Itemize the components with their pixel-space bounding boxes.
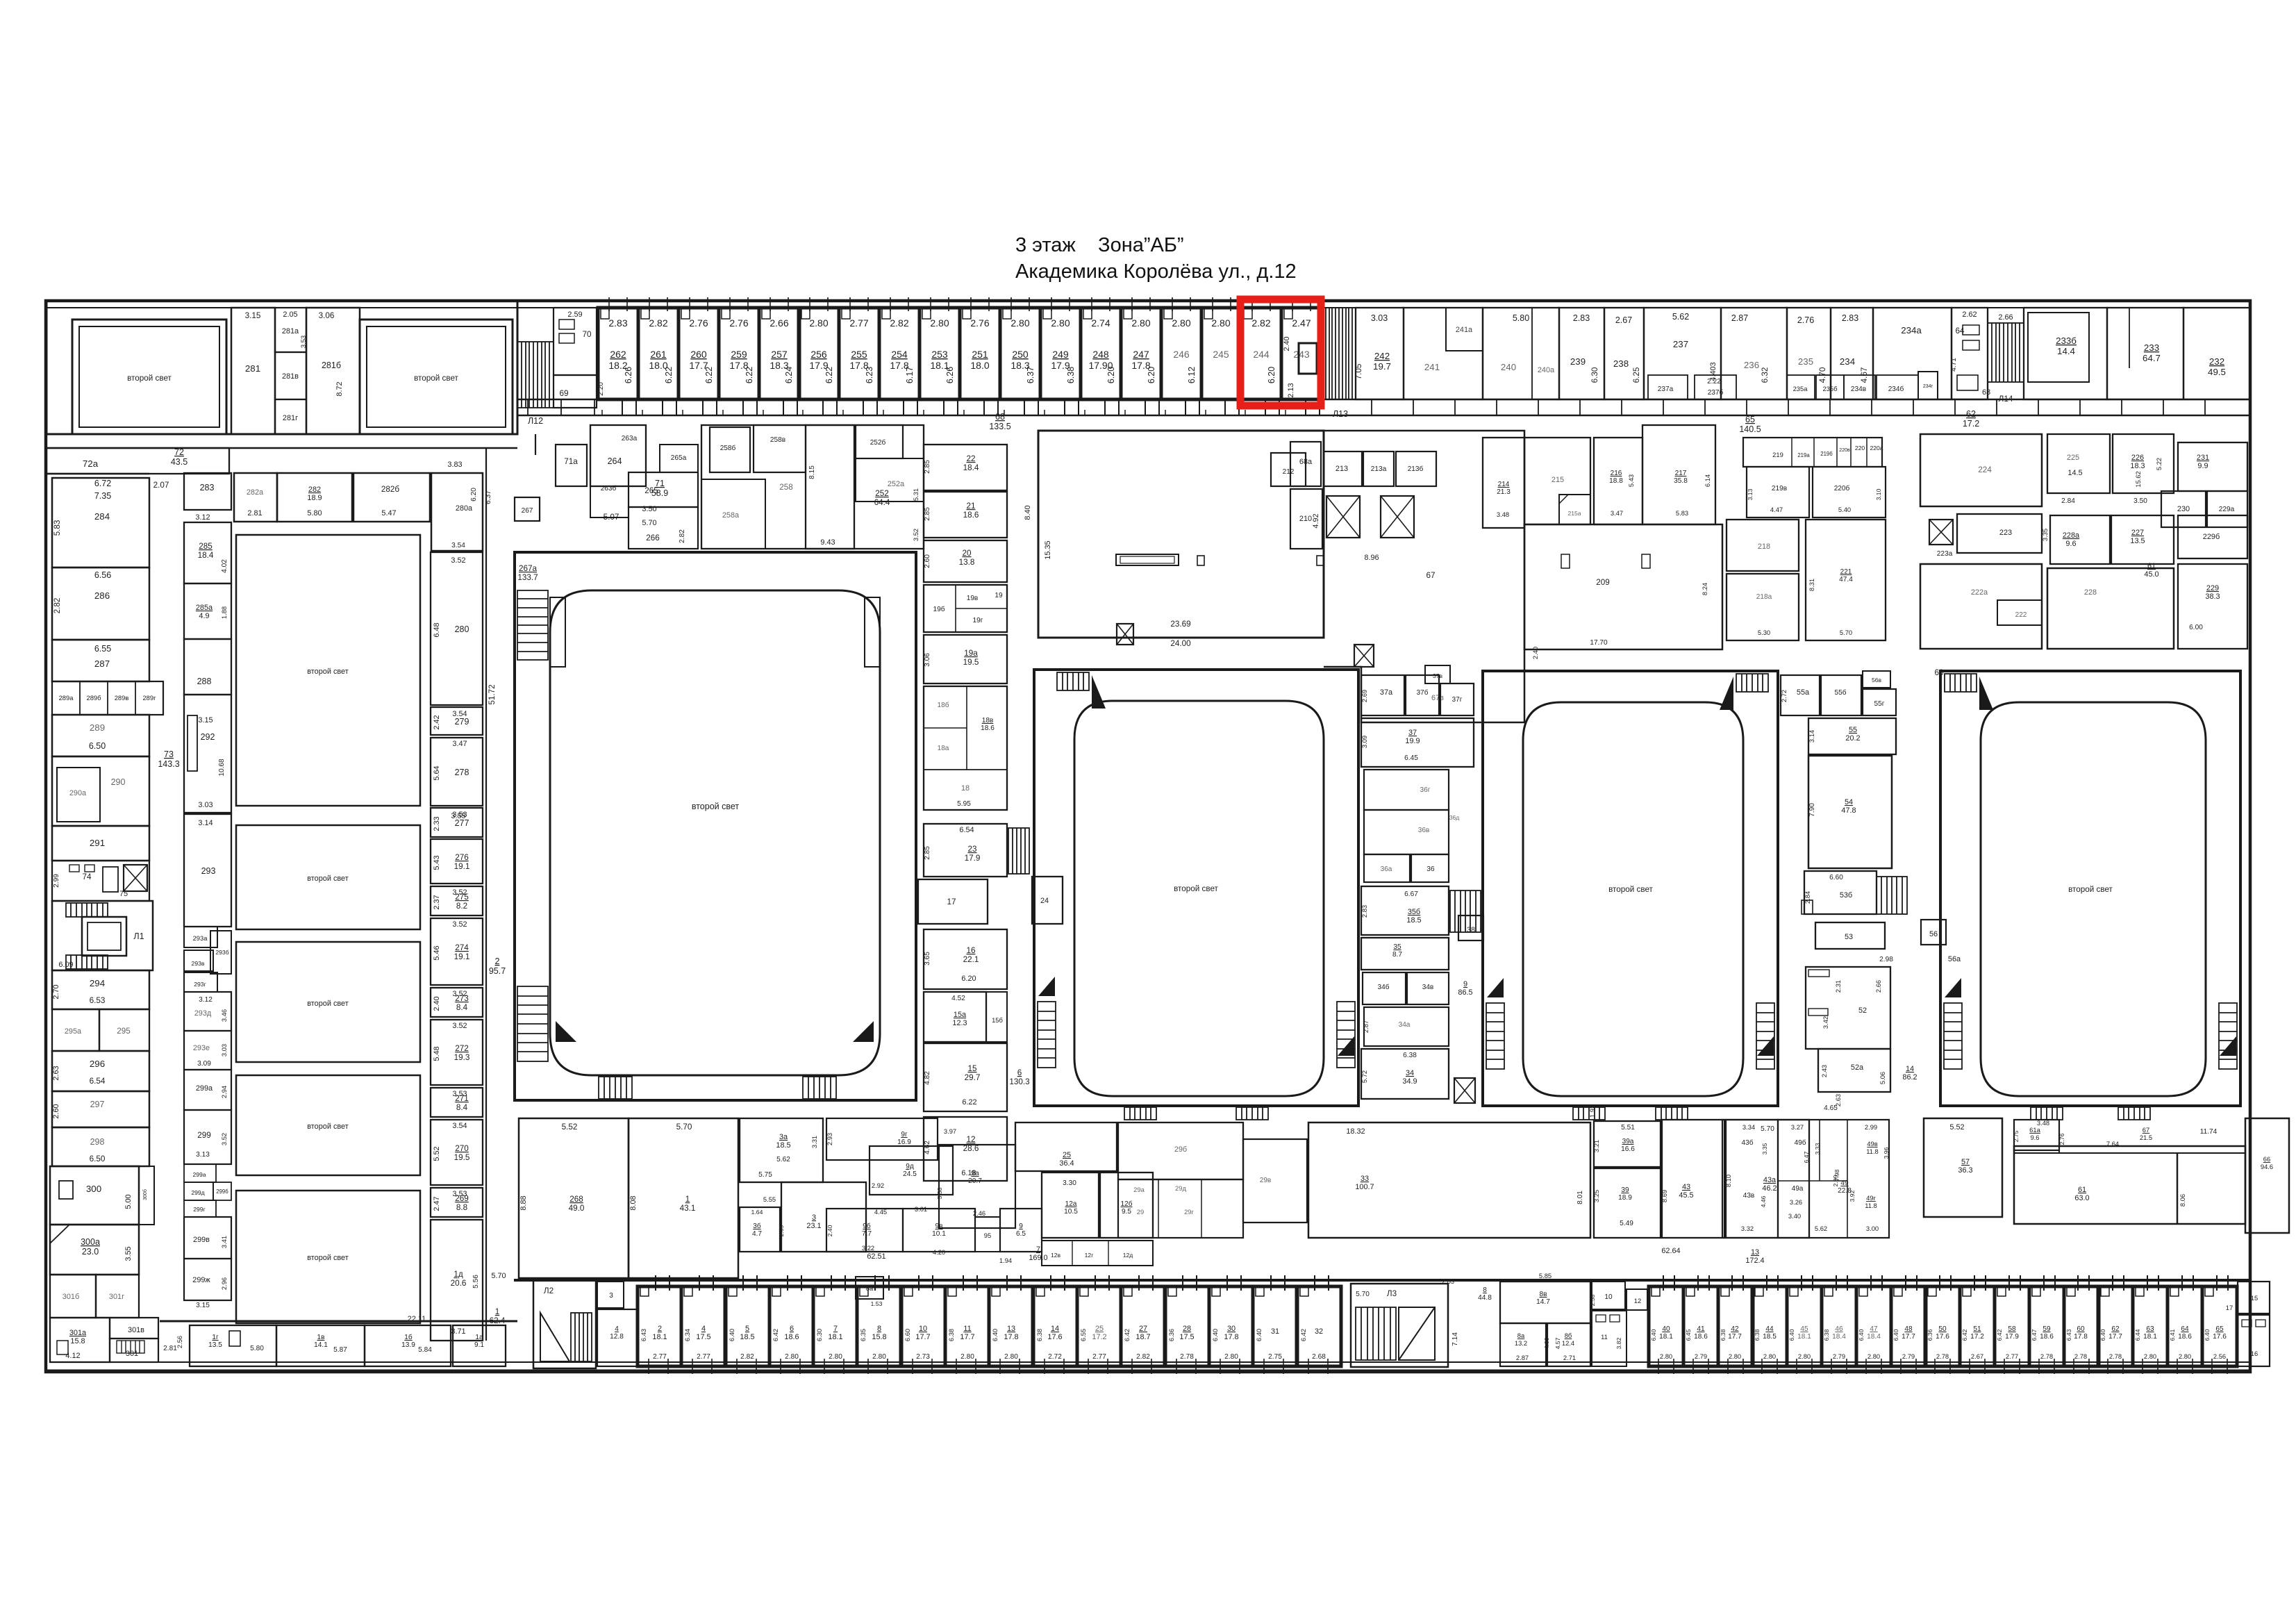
svg-text:65: 65 bbox=[2215, 1325, 2224, 1333]
svg-text:11.8: 11.8 bbox=[1866, 1147, 1879, 1155]
svg-text:5.75: 5.75 bbox=[758, 1171, 772, 1179]
svg-text:293в: 293в bbox=[192, 960, 205, 967]
svg-text:241а: 241а bbox=[1456, 326, 1473, 334]
svg-text:5.62: 5.62 bbox=[776, 1156, 790, 1163]
svg-text:2.80: 2.80 bbox=[872, 1353, 886, 1361]
svg-text:43б: 43б bbox=[1741, 1138, 1753, 1147]
svg-text:9д: 9д bbox=[906, 1163, 914, 1170]
svg-text:5.70: 5.70 bbox=[1761, 1125, 1774, 1133]
svg-text:293а: 293а bbox=[193, 934, 208, 942]
svg-text:2.93: 2.93 bbox=[826, 1133, 833, 1145]
svg-text:3.54: 3.54 bbox=[452, 1122, 467, 1130]
svg-text:249: 249 bbox=[1052, 349, 1069, 360]
svg-text:261: 261 bbox=[650, 349, 667, 360]
svg-text:7.05: 7.05 bbox=[1354, 363, 1363, 379]
svg-text:5.46: 5.46 bbox=[433, 945, 441, 960]
svg-text:220: 220 bbox=[1855, 445, 1865, 451]
svg-text:12д: 12д bbox=[1123, 1252, 1133, 1259]
svg-text:2.80: 2.80 bbox=[1763, 1352, 1776, 1360]
svg-text:8.88: 8.88 bbox=[519, 1195, 528, 1210]
svg-text:9: 9 bbox=[1019, 1223, 1023, 1230]
svg-text:3.46: 3.46 bbox=[220, 1009, 228, 1022]
svg-text:67: 67 bbox=[1426, 571, 1435, 580]
svg-text:8: 8 bbox=[1483, 1286, 1487, 1294]
svg-text:281а: 281а bbox=[282, 327, 299, 335]
svg-text:2: 2 bbox=[495, 956, 500, 966]
svg-text:2.77: 2.77 bbox=[849, 317, 868, 329]
svg-text:4.62: 4.62 bbox=[924, 1141, 931, 1154]
svg-text:2.77: 2.77 bbox=[697, 1353, 710, 1361]
svg-text:66: 66 bbox=[2263, 1155, 2270, 1163]
svg-text:6.22: 6.22 bbox=[744, 367, 754, 383]
svg-text:49в: 49в bbox=[1867, 1140, 1877, 1147]
svg-text:233: 233 bbox=[2144, 342, 2159, 353]
svg-text:267а: 267а bbox=[519, 564, 538, 573]
svg-text:14.7: 14.7 bbox=[1536, 1298, 1550, 1306]
svg-text:2.77: 2.77 bbox=[653, 1353, 667, 1361]
svg-text:6.38: 6.38 bbox=[1066, 367, 1076, 383]
svg-text:2.83: 2.83 bbox=[608, 317, 627, 329]
svg-text:271: 271 bbox=[455, 1094, 469, 1103]
svg-text:2.22: 2.22 bbox=[1707, 378, 1721, 386]
svg-text:35б: 35б bbox=[1408, 908, 1420, 916]
svg-text:5.30: 5.30 bbox=[1758, 629, 1770, 636]
svg-text:2.70: 2.70 bbox=[52, 984, 60, 999]
svg-text:59: 59 bbox=[2043, 1325, 2051, 1333]
svg-text:1б: 1б bbox=[404, 1333, 413, 1341]
svg-text:61: 61 bbox=[2078, 1186, 2086, 1194]
svg-text:2.79: 2.79 bbox=[1902, 1352, 1915, 1360]
svg-text:35: 35 bbox=[1393, 943, 1401, 951]
svg-text:6.00: 6.00 bbox=[2189, 624, 2203, 631]
svg-text:250: 250 bbox=[1012, 349, 1029, 360]
svg-text:8б: 8б bbox=[1565, 1332, 1572, 1339]
svg-text:27: 27 bbox=[1139, 1325, 1147, 1333]
svg-text:16.9: 16.9 bbox=[897, 1138, 911, 1146]
svg-text:2.80: 2.80 bbox=[960, 1353, 974, 1361]
svg-text:36в: 36в bbox=[1418, 827, 1430, 834]
svg-text:2.62: 2.62 bbox=[1962, 310, 1977, 319]
svg-text:2.77: 2.77 bbox=[2006, 1352, 2018, 1360]
svg-text:19.3: 19.3 bbox=[454, 1053, 470, 1062]
svg-text:2.40: 2.40 bbox=[433, 996, 441, 1011]
svg-text:273: 273 bbox=[455, 994, 469, 1003]
svg-text:52: 52 bbox=[1858, 1006, 1867, 1015]
svg-text:222: 222 bbox=[2015, 611, 2027, 619]
svg-text:51.72: 51.72 bbox=[488, 684, 497, 704]
svg-text:69: 69 bbox=[559, 389, 568, 398]
svg-text:246: 246 bbox=[1173, 349, 1190, 360]
svg-text:5.31: 5.31 bbox=[912, 488, 920, 501]
svg-text:235: 235 bbox=[1798, 356, 1813, 367]
svg-text:56а: 56а bbox=[1948, 955, 1961, 963]
svg-text:5.43: 5.43 bbox=[1627, 474, 1635, 487]
svg-text:12.3: 12.3 bbox=[952, 1019, 967, 1027]
svg-text:3.47: 3.47 bbox=[452, 740, 467, 748]
svg-text:2.66: 2.66 bbox=[770, 317, 788, 329]
svg-text:19.9: 19.9 bbox=[1405, 737, 1420, 745]
svg-text:8.40: 8.40 bbox=[1024, 505, 1032, 520]
svg-text:18.9: 18.9 bbox=[1618, 1194, 1632, 1202]
svg-text:218: 218 bbox=[1758, 542, 1770, 551]
svg-text:3.15: 3.15 bbox=[196, 1302, 210, 1309]
svg-text:18.1: 18.1 bbox=[652, 1333, 667, 1341]
svg-text:8.7: 8.7 bbox=[1392, 951, 1402, 959]
svg-text:215а: 215а bbox=[1567, 510, 1581, 517]
svg-text:18.5: 18.5 bbox=[1406, 916, 1421, 925]
svg-text:9.6: 9.6 bbox=[2030, 1134, 2039, 1141]
svg-text:267: 267 bbox=[522, 507, 533, 515]
svg-text:294: 294 bbox=[90, 978, 105, 988]
svg-text:6.09: 6.09 bbox=[58, 961, 73, 969]
svg-text:281в: 281в bbox=[282, 372, 299, 381]
svg-text:6.67: 6.67 bbox=[1404, 890, 1418, 898]
svg-text:2.75: 2.75 bbox=[1268, 1353, 1282, 1361]
svg-text:6.5: 6.5 bbox=[1016, 1230, 1026, 1238]
svg-text:220б: 220б bbox=[1834, 484, 1850, 492]
svg-text:2.66: 2.66 bbox=[1998, 313, 2013, 322]
svg-text:54: 54 bbox=[1845, 798, 1853, 806]
svg-text:293е: 293е bbox=[193, 1044, 210, 1052]
svg-text:228: 228 bbox=[2084, 588, 2097, 597]
svg-text:12.4: 12.4 bbox=[1562, 1339, 1574, 1347]
svg-text:29а: 29а bbox=[1133, 1186, 1145, 1193]
svg-text:17.7: 17.7 bbox=[915, 1333, 930, 1341]
svg-text:225: 225 bbox=[2067, 454, 2079, 462]
svg-text:17.6: 17.6 bbox=[1047, 1333, 1062, 1341]
svg-text:18.1: 18.1 bbox=[1659, 1333, 1673, 1341]
svg-text:3 этаж Зона”АБ”: 3 этаж Зона”АБ” bbox=[1015, 234, 1184, 256]
svg-text:18.1: 18.1 bbox=[828, 1333, 842, 1341]
svg-text:240: 240 bbox=[1501, 362, 1516, 372]
svg-text:289в: 289в bbox=[115, 694, 129, 702]
svg-text:2.79: 2.79 bbox=[1833, 1352, 1845, 1360]
svg-text:6.38: 6.38 bbox=[1035, 1329, 1043, 1341]
svg-text:298: 298 bbox=[90, 1137, 105, 1147]
svg-text:5.49: 5.49 bbox=[1620, 1220, 1633, 1227]
svg-text:17: 17 bbox=[947, 897, 956, 906]
svg-text:2.82: 2.82 bbox=[1251, 317, 1270, 329]
svg-text:второй свет: второй свет bbox=[307, 1000, 348, 1008]
svg-text:2.75: 2.75 bbox=[2013, 1130, 2020, 1142]
svg-text:8.10: 8.10 bbox=[1724, 1175, 1732, 1187]
svg-text:4.57: 4.57 bbox=[1554, 1337, 1561, 1349]
svg-text:6.26: 6.26 bbox=[624, 367, 633, 383]
svg-text:12: 12 bbox=[1634, 1297, 1641, 1304]
svg-text:301в: 301в bbox=[128, 1326, 144, 1334]
svg-text:6.36: 6.36 bbox=[1927, 1329, 1933, 1341]
svg-text:245: 245 bbox=[1213, 349, 1229, 360]
svg-text:25: 25 bbox=[1063, 1151, 1071, 1159]
svg-text:7: 7 bbox=[833, 1325, 838, 1333]
svg-text:6.20: 6.20 bbox=[1267, 367, 1276, 383]
svg-text:5.22: 5.22 bbox=[2155, 458, 2163, 470]
svg-text:63: 63 bbox=[2146, 1325, 2154, 1333]
svg-text:3.06: 3.06 bbox=[924, 653, 931, 667]
svg-text:229а: 229а bbox=[2219, 506, 2235, 513]
svg-text:16: 16 bbox=[2251, 1350, 2258, 1357]
svg-text:21.5: 21.5 bbox=[2140, 1134, 2152, 1141]
svg-text:169.0: 169.0 bbox=[1029, 1254, 1047, 1262]
svg-text:1.64: 1.64 bbox=[751, 1209, 763, 1216]
svg-text:36д: 36д bbox=[1449, 814, 1460, 821]
svg-text:3.52: 3.52 bbox=[451, 556, 465, 565]
svg-text:6.60: 6.60 bbox=[1829, 874, 1843, 881]
svg-text:3.15: 3.15 bbox=[198, 716, 213, 724]
svg-text:2.80: 2.80 bbox=[829, 1353, 842, 1361]
svg-text:2.59: 2.59 bbox=[567, 310, 582, 319]
svg-text:2.82: 2.82 bbox=[1136, 1353, 1150, 1361]
svg-text:4.9: 4.9 bbox=[199, 612, 209, 620]
svg-text:2.72: 2.72 bbox=[1048, 1353, 1062, 1361]
svg-text:18.5: 18.5 bbox=[1763, 1333, 1777, 1341]
svg-text:6.42: 6.42 bbox=[1996, 1329, 2003, 1341]
svg-text:5.70: 5.70 bbox=[1356, 1291, 1370, 1298]
svg-text:второй свет: второй свет bbox=[307, 1254, 348, 1262]
svg-text:6.40: 6.40 bbox=[1788, 1329, 1795, 1341]
svg-text:2.82: 2.82 bbox=[649, 317, 667, 329]
svg-text:2.67: 2.67 bbox=[1615, 315, 1632, 325]
svg-text:13.9: 13.9 bbox=[401, 1341, 415, 1349]
svg-text:9.9: 9.9 bbox=[2197, 462, 2208, 470]
svg-text:47: 47 bbox=[1870, 1325, 1878, 1333]
svg-text:248: 248 bbox=[1092, 349, 1109, 360]
svg-text:95: 95 bbox=[984, 1232, 991, 1239]
svg-text:36: 36 bbox=[1426, 865, 1435, 873]
svg-text:47.4: 47.4 bbox=[1839, 576, 1853, 583]
svg-text:18.6: 18.6 bbox=[963, 511, 979, 520]
svg-text:12а: 12а bbox=[1065, 1200, 1077, 1208]
svg-text:39: 39 bbox=[1621, 1186, 1629, 1194]
svg-text:2.87: 2.87 bbox=[1362, 1020, 1370, 1033]
svg-text:6.38: 6.38 bbox=[1403, 1052, 1417, 1059]
svg-text:15.35: 15.35 bbox=[1044, 540, 1052, 559]
svg-text:281г: 281г bbox=[283, 414, 298, 422]
svg-text:36.4: 36.4 bbox=[1059, 1159, 1074, 1168]
svg-text:2.47: 2.47 bbox=[1292, 317, 1311, 329]
svg-text:10.1: 10.1 bbox=[932, 1230, 946, 1238]
svg-text:3.13: 3.13 bbox=[196, 1151, 210, 1159]
svg-text:5.83: 5.83 bbox=[1676, 509, 1688, 517]
svg-text:219: 219 bbox=[1772, 451, 1783, 458]
svg-text:3.41: 3.41 bbox=[220, 1236, 228, 1248]
svg-text:6.30: 6.30 bbox=[1590, 367, 1599, 383]
svg-text:258б: 258б bbox=[720, 444, 736, 452]
svg-text:220а: 220а bbox=[1870, 445, 1883, 451]
svg-text:240а: 240а bbox=[1538, 366, 1555, 374]
svg-text:3.40: 3.40 bbox=[1788, 1212, 1801, 1220]
svg-text:3.15: 3.15 bbox=[245, 311, 261, 320]
svg-text:29: 29 bbox=[1137, 1208, 1144, 1216]
svg-text:6.12: 6.12 bbox=[1187, 367, 1197, 383]
svg-text:3.03: 3.03 bbox=[220, 1044, 228, 1057]
svg-text:13.2: 13.2 bbox=[1515, 1339, 1527, 1347]
svg-text:второй свет: второй свет bbox=[1174, 884, 1218, 893]
svg-text:49: 49 bbox=[1840, 1179, 1849, 1187]
svg-text:3.25: 3.25 bbox=[1592, 1190, 1600, 1202]
svg-text:2.43: 2.43 bbox=[1820, 1065, 1828, 1077]
svg-text:12б: 12б bbox=[1120, 1200, 1132, 1208]
svg-text:244: 244 bbox=[1253, 349, 1270, 360]
svg-text:22: 22 bbox=[966, 454, 975, 463]
svg-text:5.62: 5.62 bbox=[1815, 1225, 1827, 1232]
svg-text:229б: 229б bbox=[2203, 533, 2220, 541]
svg-text:286: 286 bbox=[94, 590, 110, 601]
svg-text:217: 217 bbox=[1675, 470, 1687, 477]
svg-text:17.2: 17.2 bbox=[1092, 1333, 1106, 1341]
svg-text:50: 50 bbox=[1938, 1325, 1947, 1333]
svg-text:6.37: 6.37 bbox=[1026, 367, 1035, 383]
svg-text:140.5: 140.5 bbox=[1739, 424, 1761, 434]
svg-text:17.8: 17.8 bbox=[1224, 1333, 1238, 1341]
svg-text:8.69: 8.69 bbox=[1661, 1190, 1668, 1202]
svg-text:2.80: 2.80 bbox=[785, 1353, 799, 1361]
svg-text:3.09: 3.09 bbox=[1361, 736, 1368, 748]
svg-text:296: 296 bbox=[90, 1059, 105, 1069]
svg-text:5.51: 5.51 bbox=[1621, 1124, 1635, 1132]
svg-text:19г: 19г bbox=[973, 617, 983, 624]
svg-text:2.80: 2.80 bbox=[930, 317, 949, 329]
svg-text:5.06: 5.06 bbox=[1879, 1072, 1886, 1084]
svg-text:49б: 49б bbox=[1794, 1138, 1806, 1147]
svg-text:33: 33 bbox=[1361, 1175, 1369, 1183]
svg-text:301б: 301б bbox=[63, 1293, 79, 1301]
svg-text:3.35: 3.35 bbox=[1761, 1143, 1768, 1154]
svg-text:17.2: 17.2 bbox=[1970, 1333, 1984, 1341]
svg-text:272: 272 bbox=[455, 1044, 469, 1053]
svg-text:2.47: 2.47 bbox=[433, 1196, 441, 1211]
svg-text:5.87: 5.87 bbox=[333, 1346, 347, 1354]
svg-text:2.79: 2.79 bbox=[1695, 1352, 1707, 1360]
svg-text:5.47: 5.47 bbox=[381, 509, 396, 517]
svg-text:2.71: 2.71 bbox=[1563, 1354, 1576, 1361]
svg-text:5.48: 5.48 bbox=[433, 1046, 441, 1061]
svg-text:2.69: 2.69 bbox=[1361, 690, 1368, 702]
svg-text:218а: 218а bbox=[1756, 593, 1772, 601]
svg-text:18.9: 18.9 bbox=[307, 494, 322, 502]
svg-text:4.46: 4.46 bbox=[1760, 1195, 1767, 1207]
svg-text:Академика Королёва ул., д.12: Академика Королёва ул., д.12 bbox=[1015, 260, 1297, 283]
svg-text:3.52: 3.52 bbox=[452, 920, 467, 929]
svg-text:64: 64 bbox=[2181, 1325, 2189, 1333]
svg-text:5.70: 5.70 bbox=[491, 1272, 506, 1280]
svg-text:3.12: 3.12 bbox=[195, 513, 210, 522]
svg-text:299в: 299в bbox=[193, 1236, 210, 1244]
svg-text:57: 57 bbox=[1961, 1158, 1970, 1166]
svg-text:2.67: 2.67 bbox=[1971, 1352, 1983, 1360]
svg-text:3.12: 3.12 bbox=[199, 996, 213, 1004]
svg-text:9в: 9в bbox=[935, 1223, 943, 1230]
svg-text:23.0: 23.0 bbox=[82, 1247, 99, 1257]
svg-text:299а: 299а bbox=[196, 1084, 213, 1093]
svg-text:8: 8 bbox=[877, 1325, 881, 1333]
svg-text:2.56: 2.56 bbox=[176, 1336, 183, 1348]
svg-text:19.5: 19.5 bbox=[963, 658, 979, 667]
svg-text:6: 6 bbox=[790, 1325, 794, 1333]
svg-text:3.65: 3.65 bbox=[924, 952, 931, 966]
svg-text:18.5: 18.5 bbox=[776, 1141, 790, 1150]
svg-text:6.30: 6.30 bbox=[815, 1329, 823, 1341]
svg-text:3.21: 3.21 bbox=[1592, 1140, 1600, 1152]
svg-text:265а: 265а bbox=[671, 454, 687, 462]
svg-text:Л14: Л14 bbox=[1999, 395, 2013, 404]
svg-text:7.98: 7.98 bbox=[1833, 1169, 1840, 1181]
svg-text:34а: 34а bbox=[1399, 1021, 1411, 1029]
svg-text:10: 10 bbox=[1604, 1293, 1613, 1301]
svg-text:6.42: 6.42 bbox=[1299, 1329, 1307, 1341]
svg-text:44: 44 bbox=[1765, 1325, 1774, 1333]
svg-text:2.60: 2.60 bbox=[52, 1104, 60, 1118]
svg-text:15.62: 15.62 bbox=[2134, 471, 2142, 487]
svg-text:13.5: 13.5 bbox=[2130, 537, 2145, 545]
svg-text:17.8: 17.8 bbox=[2074, 1333, 2088, 1341]
svg-text:18б: 18б bbox=[937, 701, 949, 709]
svg-text:262: 262 bbox=[610, 349, 626, 360]
svg-text:3.27: 3.27 bbox=[1791, 1123, 1804, 1131]
svg-text:Л12: Л12 bbox=[528, 416, 543, 426]
svg-text:64.7: 64.7 bbox=[2143, 353, 2161, 363]
svg-text:10.68: 10.68 bbox=[218, 759, 226, 777]
svg-text:219в: 219в bbox=[1772, 485, 1787, 492]
svg-text:6.38: 6.38 bbox=[947, 1329, 955, 1341]
svg-text:18.1: 18.1 bbox=[1797, 1333, 1811, 1341]
svg-text:17.2: 17.2 bbox=[1963, 419, 1979, 429]
svg-text:48: 48 bbox=[1904, 1325, 1913, 1333]
svg-text:6.24: 6.24 bbox=[784, 367, 794, 383]
svg-text:6.43: 6.43 bbox=[2065, 1329, 2072, 1341]
svg-text:3.33: 3.33 bbox=[1814, 1143, 1821, 1154]
svg-text:3.52: 3.52 bbox=[912, 529, 920, 541]
svg-text:2.87: 2.87 bbox=[1731, 313, 1748, 323]
svg-text:18.6: 18.6 bbox=[981, 724, 995, 732]
svg-text:16: 16 bbox=[966, 946, 975, 955]
svg-text:6.42: 6.42 bbox=[1123, 1329, 1131, 1341]
svg-text:37: 37 bbox=[1408, 729, 1417, 737]
svg-text:2.80: 2.80 bbox=[1051, 317, 1070, 329]
svg-text:6.47: 6.47 bbox=[2031, 1329, 2038, 1341]
svg-text:2.80: 2.80 bbox=[1010, 317, 1029, 329]
svg-text:234а: 234а bbox=[1901, 325, 1922, 335]
svg-text:3.32: 3.32 bbox=[1741, 1225, 1754, 1232]
svg-text:269: 269 bbox=[455, 1194, 469, 1203]
svg-text:2.07: 2.07 bbox=[153, 481, 169, 490]
svg-text:4.47: 4.47 bbox=[1770, 506, 1783, 513]
svg-text:6.42: 6.42 bbox=[1961, 1329, 1968, 1341]
svg-text:21: 21 bbox=[966, 502, 975, 511]
svg-text:6.20: 6.20 bbox=[1106, 367, 1116, 383]
svg-text:22.1: 22.1 bbox=[963, 955, 979, 964]
svg-text:3.30: 3.30 bbox=[1063, 1179, 1076, 1187]
svg-text:6.40: 6.40 bbox=[1255, 1329, 1263, 1341]
svg-text:6.53: 6.53 bbox=[90, 996, 106, 1005]
svg-text:236: 236 bbox=[1744, 360, 1759, 370]
svg-text:24.5: 24.5 bbox=[903, 1170, 917, 1178]
svg-text:18.4: 18.4 bbox=[198, 551, 214, 560]
svg-text:45: 45 bbox=[1800, 1325, 1808, 1333]
svg-text:8.2: 8.2 bbox=[456, 902, 467, 911]
svg-text:3.13: 3.13 bbox=[1747, 488, 1754, 500]
svg-text:6.38: 6.38 bbox=[1720, 1329, 1727, 1341]
svg-text:49.0: 49.0 bbox=[569, 1204, 585, 1213]
svg-text:Л2: Л2 bbox=[544, 1286, 554, 1295]
svg-text:23: 23 bbox=[967, 845, 976, 854]
svg-text:8а: 8а bbox=[866, 1284, 874, 1292]
svg-text:2.80: 2.80 bbox=[1172, 317, 1190, 329]
svg-text:14: 14 bbox=[1051, 1325, 1059, 1333]
svg-text:15: 15 bbox=[967, 1064, 977, 1073]
svg-text:9.6: 9.6 bbox=[2065, 540, 2076, 548]
svg-text:290а: 290а bbox=[69, 789, 87, 797]
